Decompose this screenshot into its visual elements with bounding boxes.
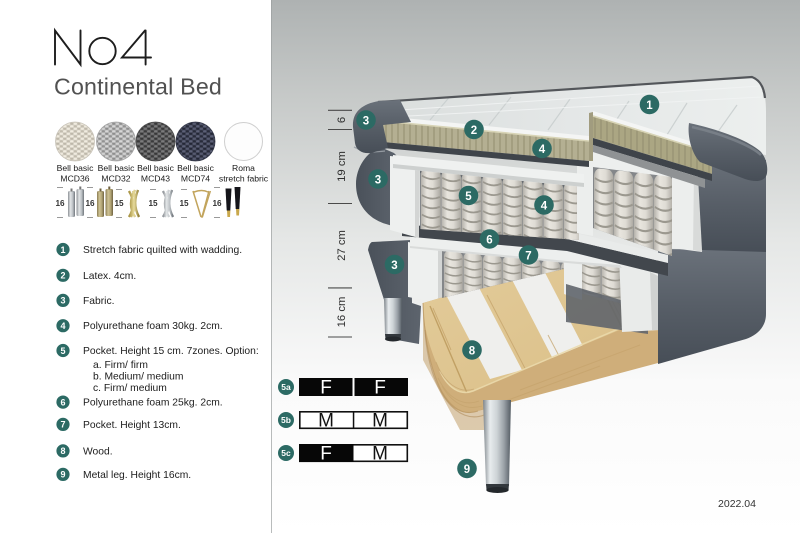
svg-text:3: 3 — [391, 260, 397, 272]
svg-text:Bell basic: Bell basic — [98, 163, 135, 173]
svg-text:15: 15 — [148, 199, 158, 208]
svg-text:4: 4 — [539, 144, 546, 156]
svg-text:3: 3 — [375, 174, 381, 186]
svg-text:4: 4 — [541, 200, 548, 212]
svg-text:F: F — [320, 378, 332, 399]
svg-text:4: 4 — [60, 321, 65, 331]
svg-text:MCD32: MCD32 — [101, 174, 130, 184]
svg-text:Stretch fabric quilted with wa: Stretch fabric quilted with wadding. — [83, 245, 242, 256]
svg-text:3: 3 — [363, 115, 369, 127]
svg-text:1: 1 — [646, 100, 653, 112]
svg-text:1: 1 — [60, 245, 65, 255]
svg-text:5c: 5c — [281, 448, 291, 458]
svg-text:2: 2 — [60, 271, 65, 281]
svg-text:16: 16 — [85, 199, 95, 208]
svg-text:16: 16 — [212, 199, 222, 208]
svg-text:16: 16 — [55, 199, 65, 208]
svg-text:5: 5 — [465, 191, 472, 203]
svg-text:5a: 5a — [281, 382, 291, 392]
svg-text:c. Firm/ medium: c. Firm/ medium — [93, 383, 167, 394]
svg-text:Polyurethane foam 25kg. 2cm.: Polyurethane foam 25kg. 2cm. — [83, 398, 223, 409]
svg-text:M: M — [318, 411, 334, 432]
svg-text:16 cm: 16 cm — [336, 297, 348, 328]
svg-text:F: F — [374, 378, 386, 399]
svg-text:Polyurethane foam 30kg. 2cm.: Polyurethane foam 30kg. 2cm. — [83, 321, 223, 332]
svg-text:stretch fabric: stretch fabric — [219, 174, 269, 184]
svg-text:15: 15 — [114, 199, 124, 208]
svg-text:2022.04: 2022.04 — [718, 498, 756, 510]
svg-text:6: 6 — [60, 397, 65, 407]
svg-text:MCD43: MCD43 — [141, 174, 170, 184]
svg-text:19 cm: 19 cm — [336, 151, 348, 182]
svg-text:6: 6 — [336, 117, 348, 123]
svg-text:M: M — [372, 444, 388, 465]
svg-text:Bell basic: Bell basic — [137, 163, 174, 173]
svg-text:Bell basic: Bell basic — [57, 163, 94, 173]
svg-text:9: 9 — [60, 470, 65, 480]
svg-text:Metal leg. Height 16cm.: Metal leg. Height 16cm. — [83, 470, 191, 481]
svg-text:5: 5 — [60, 346, 65, 356]
svg-text:9: 9 — [464, 464, 470, 476]
svg-text:MCD36: MCD36 — [60, 174, 89, 184]
svg-text:M: M — [372, 411, 388, 432]
svg-text:8: 8 — [60, 446, 65, 456]
svg-text:7: 7 — [525, 250, 531, 262]
svg-text:Wood.: Wood. — [83, 446, 113, 457]
svg-text:Pocket. Height 13cm.: Pocket. Height 13cm. — [83, 420, 181, 431]
svg-text:Pocket. Height 15 cm. 7zones.: Pocket. Height 15 cm. 7zones. Option: — [83, 346, 259, 357]
svg-text:a. Firm/ firm: a. Firm/ firm — [93, 360, 148, 371]
svg-text:Roma: Roma — [232, 163, 255, 173]
svg-text:Continental Bed: Continental Bed — [54, 74, 222, 100]
svg-text:5b: 5b — [281, 415, 291, 425]
svg-text:Bell basic: Bell basic — [177, 163, 214, 173]
svg-text:MCD74: MCD74 — [181, 174, 210, 184]
svg-text:2: 2 — [471, 125, 477, 137]
svg-text:27 cm: 27 cm — [336, 230, 348, 261]
svg-text:15: 15 — [179, 199, 189, 208]
svg-text:Latex. 4cm.: Latex. 4cm. — [83, 271, 136, 282]
svg-text:Fabric.: Fabric. — [83, 296, 114, 307]
svg-text:3: 3 — [60, 296, 65, 306]
svg-text:8: 8 — [469, 345, 476, 357]
svg-text:F: F — [320, 444, 332, 465]
svg-text:b. Medium/ medium: b. Medium/ medium — [93, 372, 183, 383]
svg-text:7: 7 — [60, 420, 65, 430]
svg-text:6: 6 — [486, 234, 492, 246]
